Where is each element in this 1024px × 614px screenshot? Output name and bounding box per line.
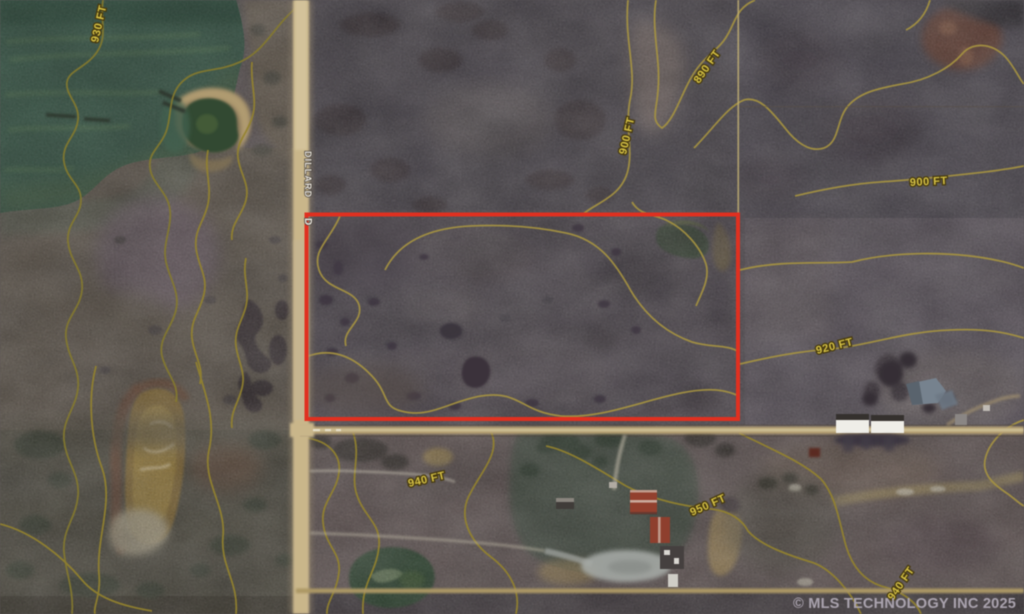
svg-text:DILLARD: DILLARD xyxy=(303,151,313,198)
svg-text:D: D xyxy=(302,218,313,225)
svg-text:900 FT: 900 FT xyxy=(910,175,948,189)
svg-text:© MLS TECHNOLOGY INC 2025: © MLS TECHNOLOGY INC 2025 xyxy=(793,596,1016,612)
